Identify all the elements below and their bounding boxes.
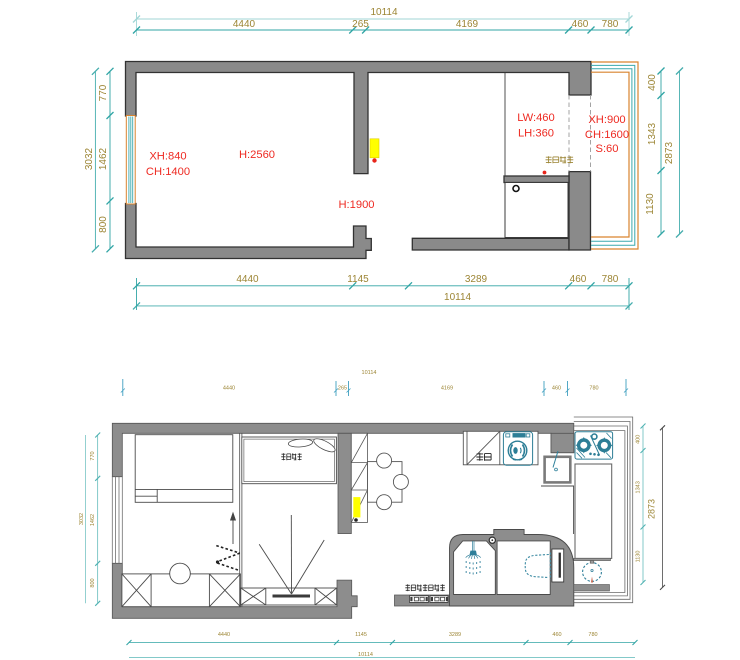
- svg-text:780: 780: [589, 386, 598, 392]
- svg-text:460: 460: [552, 632, 561, 638]
- svg-text:1462: 1462: [90, 514, 96, 526]
- svg-text:10114: 10114: [362, 370, 377, 376]
- svg-text:1145: 1145: [347, 274, 369, 285]
- svg-text:3289: 3289: [449, 632, 461, 638]
- svg-text:1462: 1462: [98, 147, 109, 170]
- svg-text:800: 800: [90, 578, 96, 587]
- svg-text:460: 460: [570, 274, 587, 285]
- svg-text:780: 780: [588, 632, 597, 638]
- svg-text:265: 265: [338, 386, 347, 392]
- svg-text:4440: 4440: [236, 274, 259, 285]
- svg-text:460: 460: [572, 19, 589, 30]
- svg-text:400: 400: [647, 74, 658, 91]
- svg-text:1130: 1130: [636, 551, 642, 563]
- svg-text:4440: 4440: [233, 19, 256, 30]
- svg-text:CH:1600: CH:1600: [585, 129, 629, 141]
- svg-text:800: 800: [98, 216, 109, 233]
- svg-text:3289: 3289: [465, 274, 488, 285]
- svg-text:4169: 4169: [456, 19, 479, 30]
- svg-text:1343: 1343: [636, 481, 642, 493]
- svg-text:4440: 4440: [223, 386, 235, 392]
- svg-text:3032: 3032: [79, 513, 85, 525]
- svg-text:S:60: S:60: [595, 143, 618, 155]
- svg-text:CH:1400: CH:1400: [146, 166, 190, 178]
- svg-text:2873: 2873: [647, 499, 657, 519]
- svg-text:780: 780: [602, 274, 619, 285]
- svg-text:1145: 1145: [355, 632, 367, 638]
- svg-text:LH:360: LH:360: [518, 128, 554, 140]
- svg-text:4169: 4169: [441, 386, 453, 392]
- svg-text:4440: 4440: [218, 632, 230, 638]
- svg-text:2873: 2873: [664, 141, 675, 164]
- svg-text:XH:840: XH:840: [149, 151, 186, 163]
- svg-text:10114: 10114: [358, 652, 373, 658]
- svg-text:10114: 10114: [370, 7, 398, 18]
- svg-text:H:2560: H:2560: [239, 149, 275, 161]
- svg-text:265: 265: [352, 19, 369, 30]
- svg-text:3032: 3032: [84, 147, 95, 170]
- svg-text:10114: 10114: [444, 292, 472, 303]
- svg-text:770: 770: [90, 451, 96, 460]
- svg-text:1130: 1130: [645, 193, 656, 215]
- svg-text:400: 400: [636, 435, 642, 444]
- svg-text:XH:900: XH:900: [588, 114, 625, 126]
- svg-text:780: 780: [602, 19, 619, 30]
- svg-text:H:1900: H:1900: [338, 199, 374, 211]
- svg-text:770: 770: [98, 84, 109, 101]
- svg-text:LW:460: LW:460: [517, 112, 555, 124]
- svg-text:1343: 1343: [647, 122, 658, 145]
- svg-text:460: 460: [552, 386, 561, 392]
